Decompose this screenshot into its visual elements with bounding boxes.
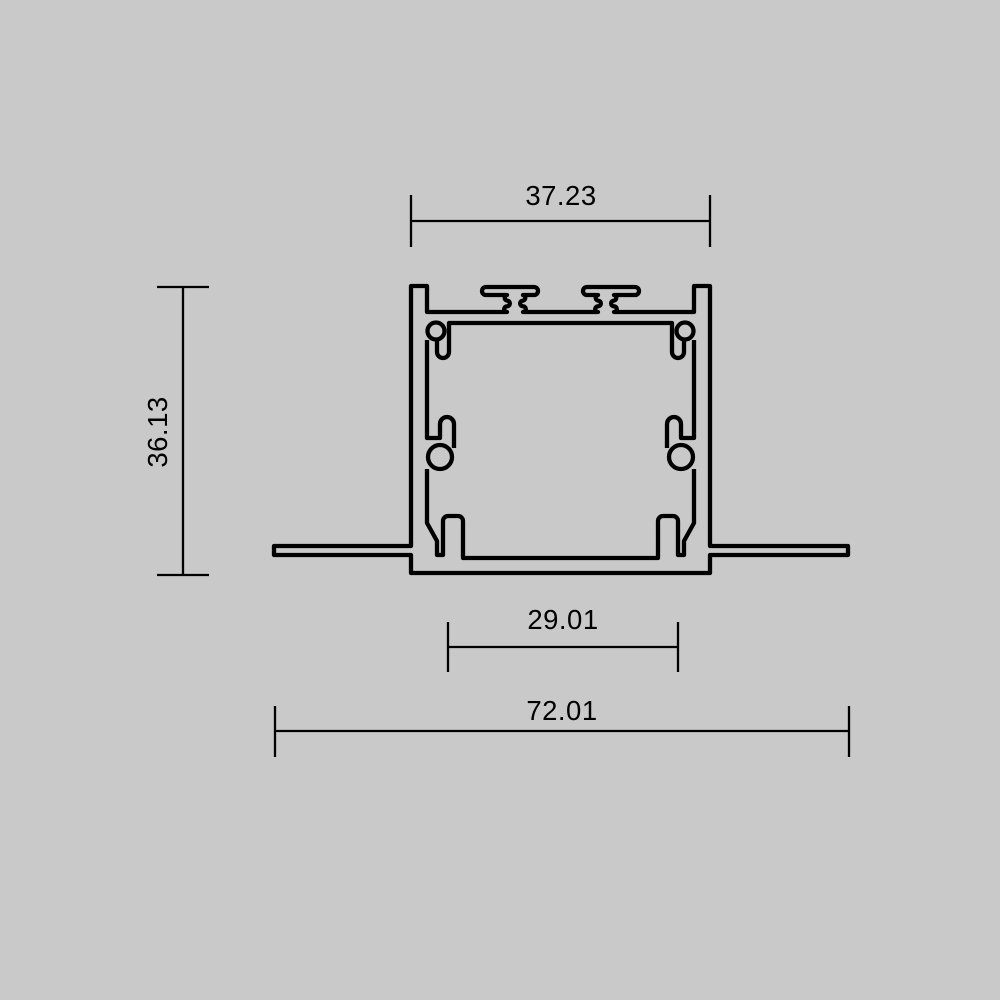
- snap-ball-top-left: [428, 323, 445, 340]
- profile-inner-walls-floor: [427, 340, 694, 558]
- profile-inner-ceiling-hooks: [437, 323, 684, 358]
- dimension-inner-width-label: 29.01: [527, 604, 598, 635]
- dimension-height-label: 36.13: [142, 396, 173, 467]
- dimension-overall-width-label: 72.01: [526, 695, 597, 726]
- snap-ball-top-right: [677, 323, 694, 340]
- dimension-height: 36.13: [142, 287, 209, 575]
- snap-ball-mid-left: [428, 445, 452, 469]
- snap-ball-mid-right: [669, 445, 693, 469]
- dimension-annotations: 37.23 36.13 29.01 72.01: [142, 180, 849, 757]
- profile-section: [274, 286, 848, 573]
- drawing-canvas: 37.23 36.13 29.01 72.01: [0, 0, 1000, 1000]
- dimension-overall-width: 72.01: [275, 695, 849, 757]
- profile-technical-drawing: 37.23 36.13 29.01 72.01: [0, 0, 1000, 1000]
- profile-outer-contour: [274, 286, 848, 573]
- dimension-inner-width: 29.01: [448, 604, 678, 672]
- dimension-top-width-label: 37.23: [525, 180, 596, 211]
- dimension-top-width: 37.23: [411, 180, 710, 247]
